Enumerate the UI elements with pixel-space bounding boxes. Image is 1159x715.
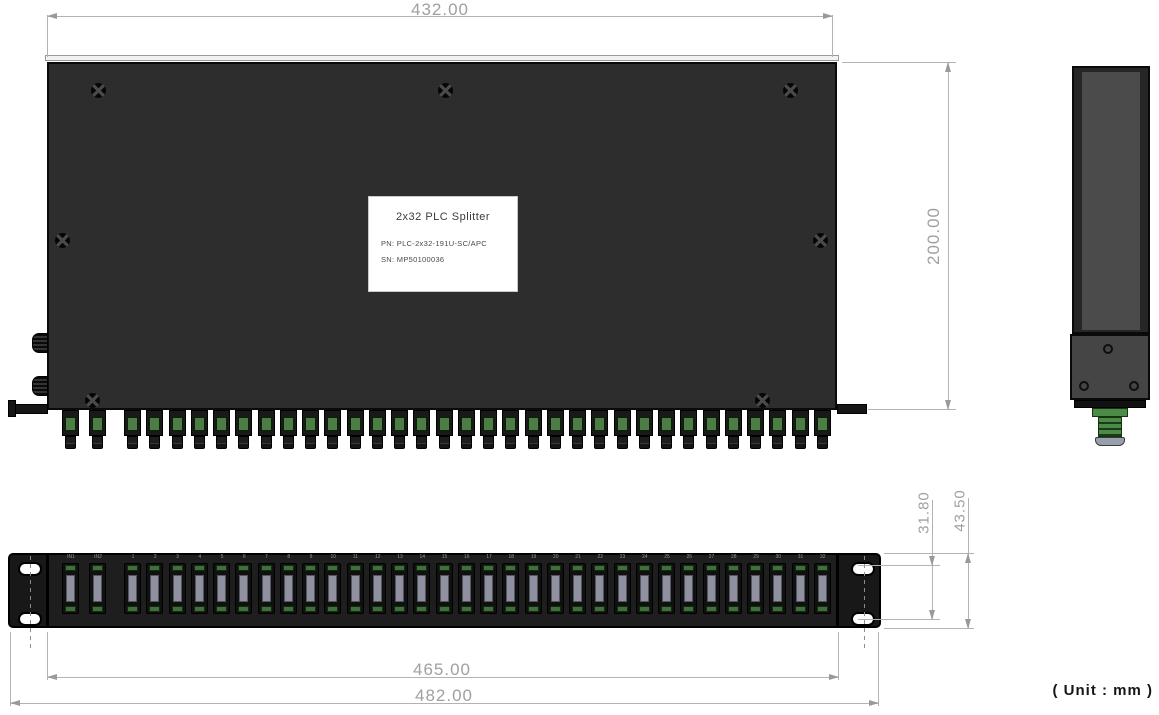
adapter-dust-plug (640, 575, 649, 602)
connector-housing (235, 410, 252, 436)
connector-housing (458, 410, 475, 436)
sc-apc-connector-top-view (747, 410, 764, 450)
device-label: 2x32 PLC Splitter PN: PLC-2x32-191U-SC/A… (368, 196, 518, 292)
cover-screw-icon (85, 393, 100, 408)
sc-apc-connector-top-view (89, 410, 106, 450)
sc-apc-connector-top-view (191, 410, 208, 450)
adapter-tab (439, 565, 450, 571)
adapter-tab (706, 565, 717, 571)
side-connector-body (1098, 417, 1122, 437)
port-label: 29 (745, 554, 767, 560)
adapter-dust-plug (684, 575, 693, 602)
dimension-arrow (965, 553, 971, 563)
sc-apc-connector-top-view (124, 410, 141, 450)
extension-line (47, 632, 48, 680)
connector-green-insert (505, 417, 516, 431)
adapter-tab (617, 565, 628, 571)
connector-green-insert (617, 417, 628, 431)
adapter-dust-plug (551, 575, 560, 602)
mounting-ear-right-top-view (837, 404, 867, 414)
adapter-tab (65, 606, 76, 612)
adapter-tab (706, 606, 717, 612)
adapter-tab (172, 565, 183, 571)
dimension-label-body-width: 465.00 (392, 660, 492, 680)
connector-housing (814, 410, 831, 436)
sc-apc-connector-top-view (235, 410, 252, 450)
slot-centerline (30, 556, 31, 652)
sc-apc-adapter-front-view: 21 (569, 563, 586, 614)
adapter-tab (795, 606, 806, 612)
adapter-dust-plug (796, 575, 805, 602)
extension-line (858, 565, 940, 566)
connector-boot (772, 436, 783, 449)
port-label: 11 (345, 554, 367, 560)
dimension-label-overall-width: 482.00 (394, 686, 494, 706)
connector-housing (302, 410, 319, 436)
sc-apc-adapter-front-view: IN1 (62, 563, 79, 614)
sc-apc-connector-top-view (769, 410, 786, 450)
connector-boot (795, 436, 806, 449)
connector-green-insert (194, 417, 205, 431)
connector-boot (661, 436, 672, 449)
adapter-tab (416, 606, 427, 612)
dimension-label-top-width: 432.00 (390, 0, 490, 20)
bracket-hole (1129, 381, 1139, 391)
connector-boot (127, 436, 138, 449)
sc-apc-adapter-front-view: 18 (502, 563, 519, 614)
adapter-dust-plug (373, 575, 382, 602)
adapter-tab (350, 606, 361, 612)
connector-green-insert (416, 417, 427, 431)
port-label: 28 (723, 554, 745, 560)
port-label: 14 (411, 554, 433, 560)
port-label: 7 (256, 554, 278, 560)
port-label: 21 (567, 554, 589, 560)
dimension-arrow (945, 400, 951, 410)
adapter-dust-plug (818, 575, 827, 602)
port-label: 15 (434, 554, 456, 560)
sc-apc-adapter-front-view: 10 (324, 563, 341, 614)
sc-apc-connector-top-view (458, 410, 475, 450)
connector-boot (817, 436, 828, 449)
adapter-dust-plug (328, 575, 337, 602)
adapter-tab (817, 606, 828, 612)
connector-boot (550, 436, 561, 449)
sc-apc-adapter-front-view: 3 (169, 563, 186, 614)
sc-apc-adapter-front-view: 26 (680, 563, 697, 614)
connector-green-insert (283, 417, 294, 431)
connector-green-insert (728, 417, 739, 431)
port-label: 9 (300, 554, 322, 560)
connector-green-insert (127, 417, 138, 431)
port-label: 20 (545, 554, 567, 560)
adapter-dust-plug (595, 575, 604, 602)
connector-green-insert (327, 417, 338, 431)
adapter-dust-plug (395, 575, 404, 602)
connector-boot (350, 436, 361, 449)
adapter-tab (683, 565, 694, 571)
connector-boot (92, 436, 103, 449)
connector-housing (525, 410, 542, 436)
adapter-dust-plug (217, 575, 226, 602)
adapter-dust-plug (484, 575, 493, 602)
unit-note: ( Unit : mm ) (1053, 682, 1154, 699)
connector-housing (658, 410, 675, 436)
extension-line (838, 632, 839, 680)
connector-boot (149, 436, 160, 449)
connector-housing (89, 410, 106, 436)
adapter-tab (394, 565, 405, 571)
sc-apc-connector-top-view (391, 410, 408, 450)
adapter-tab (283, 565, 294, 571)
dimension-arrow (929, 556, 935, 566)
sc-apc-connector-top-view (547, 410, 564, 450)
adapter-dust-plug (573, 575, 582, 602)
adapter-tab (65, 565, 76, 571)
adapter-tab (327, 606, 338, 612)
adapter-tab (772, 565, 783, 571)
connector-housing (725, 410, 742, 436)
thumb-screw (32, 333, 48, 353)
dimension-arrow (47, 674, 57, 680)
cover-screw-icon (91, 83, 106, 98)
engineering-drawing: 2x32 PLC Splitter PN: PLC-2x32-191U-SC/A… (0, 0, 1159, 715)
sc-apc-adapter-front-view: IN2 (89, 563, 106, 614)
sc-apc-adapter-front-view: 11 (347, 563, 364, 614)
adapter-tab (238, 565, 249, 571)
mounting-ear-left-flange (8, 400, 16, 417)
extension-line (10, 632, 11, 706)
sc-apc-connector-top-view (658, 410, 675, 450)
sc-apc-adapter-front-view: 9 (302, 563, 319, 614)
slot-centerline (864, 556, 865, 652)
dimension-arrow (823, 13, 833, 19)
connector-green-insert (261, 417, 272, 431)
port-label: 19 (523, 554, 545, 560)
connector-green-insert (594, 417, 605, 431)
connector-boot (261, 436, 272, 449)
adapter-tab (594, 565, 605, 571)
sc-apc-adapter-front-view: 22 (591, 563, 608, 614)
adapter-tab (550, 565, 561, 571)
device-label-serial-number: SN: MP50100036 (381, 255, 517, 264)
adapter-tab (728, 606, 739, 612)
adapter-tab (528, 606, 539, 612)
port-label: 10 (322, 554, 344, 560)
adapter-tab (594, 606, 605, 612)
dimension-line-200 (948, 62, 949, 410)
adapter-tab (817, 565, 828, 571)
connector-boot (394, 436, 405, 449)
connector-green-insert (172, 417, 183, 431)
port-label: 30 (767, 554, 789, 560)
connector-boot (461, 436, 472, 449)
extension-line (858, 619, 940, 620)
adapter-dust-plug (128, 575, 137, 602)
dimension-label-depth: 200.00 (924, 196, 944, 276)
chassis-back-edge (45, 55, 839, 61)
adapter-dust-plug (662, 575, 671, 602)
adapter-tab (661, 606, 672, 612)
sc-apc-adapter-front-view: 4 (191, 563, 208, 614)
connector-boot (439, 436, 450, 449)
port-label: 2 (144, 554, 166, 560)
connector-green-insert (817, 417, 828, 431)
adapter-tab (639, 565, 650, 571)
adapter-tab (394, 606, 405, 612)
adapter-tab (149, 565, 160, 571)
dimension-arrow (829, 674, 839, 680)
adapter-tab (216, 606, 227, 612)
connector-housing (636, 410, 653, 436)
dimension-arrow (945, 62, 951, 72)
connector-boot (65, 436, 76, 449)
adapter-tab (149, 606, 160, 612)
adapter-dust-plug (351, 575, 360, 602)
adapter-dust-plug (284, 575, 293, 602)
adapter-tab (661, 565, 672, 571)
sc-apc-adapter-front-view: 23 (614, 563, 631, 614)
side-view-panel-edge (1074, 400, 1146, 408)
connector-green-insert (92, 417, 103, 431)
sc-apc-connector-top-view (502, 410, 519, 450)
connector-boot (639, 436, 650, 449)
connector-green-insert (550, 417, 561, 431)
adapter-dust-plug (707, 575, 716, 602)
connector-green-insert (706, 417, 717, 431)
bracket-hole (1079, 381, 1089, 391)
connector-boot (372, 436, 383, 449)
adapter-tab (795, 565, 806, 571)
port-label: 16 (456, 554, 478, 560)
connector-housing (258, 410, 275, 436)
connector-boot (505, 436, 516, 449)
adapter-tab (505, 606, 516, 612)
sc-apc-adapter-front-view: 19 (525, 563, 542, 614)
connector-housing (280, 410, 297, 436)
connector-housing (369, 410, 386, 436)
sc-apc-connector-top-view (680, 410, 697, 450)
connector-boot (483, 436, 494, 449)
dimension-label-panel-height: 43.50 (952, 471, 969, 551)
adapter-dust-plug (618, 575, 627, 602)
sc-apc-connector-top-view (369, 410, 386, 450)
connector-housing (569, 410, 586, 436)
connector-housing (680, 410, 697, 436)
connector-boot (327, 436, 338, 449)
sc-apc-adapter-front-view: 2 (146, 563, 163, 614)
adapter-tab (127, 606, 138, 612)
adapter-tab (305, 565, 316, 571)
connector-boot (528, 436, 539, 449)
adapter-tab (550, 606, 561, 612)
extension-line (884, 553, 974, 554)
adapter-dust-plug (729, 575, 738, 602)
port-label: 8 (278, 554, 300, 560)
adapter-tab (350, 565, 361, 571)
sc-apc-connector-top-view (324, 410, 341, 450)
sc-apc-adapter-front-view: 12 (369, 563, 386, 614)
sc-apc-adapter-front-view: 25 (658, 563, 675, 614)
connector-green-insert (572, 417, 583, 431)
connector-green-insert (639, 417, 650, 431)
adapter-tab (639, 606, 650, 612)
port-label: 25 (656, 554, 678, 560)
extension-line (868, 409, 956, 410)
adapter-tab (772, 606, 783, 612)
connector-green-insert (483, 417, 494, 431)
port-label: 24 (634, 554, 656, 560)
sc-apc-connector-top-view (814, 410, 831, 450)
sc-apc-adapter-front-view: 31 (792, 563, 809, 614)
side-view-chassis (1072, 66, 1150, 334)
connector-boot (305, 436, 316, 449)
port-label: IN2 (87, 554, 109, 560)
sc-apc-connector-top-view (436, 410, 453, 450)
sc-apc-adapter-front-view: 32 (814, 563, 831, 614)
adapter-tab (572, 606, 583, 612)
connector-green-insert (683, 417, 694, 431)
adapter-dust-plug (529, 575, 538, 602)
sc-apc-connector-top-view (569, 410, 586, 450)
sc-apc-connector-top-view (258, 410, 275, 450)
connector-boot (617, 436, 628, 449)
adapter-tab (528, 565, 539, 571)
connector-green-insert (528, 417, 539, 431)
adapter-tab (127, 565, 138, 571)
dimension-arrow (10, 700, 20, 706)
adapter-tab (372, 565, 383, 571)
connector-housing (502, 410, 519, 436)
sc-apc-adapter-front-view: 24 (636, 563, 653, 614)
dimension-arrow (929, 610, 935, 620)
adapter-tab (572, 565, 583, 571)
connector-green-insert (350, 417, 361, 431)
connector-green-insert (661, 417, 672, 431)
thumb-screw (32, 376, 48, 396)
connector-housing (591, 410, 608, 436)
adapter-dust-plug (66, 575, 75, 602)
sc-apc-adapter-front-view: 29 (747, 563, 764, 614)
port-label: 1 (122, 554, 144, 560)
connector-boot (706, 436, 717, 449)
connector-green-insert (65, 417, 76, 431)
port-label: 31 (790, 554, 812, 560)
dimension-label-slot-spacing: 31.80 (916, 473, 933, 553)
connector-housing (191, 410, 208, 436)
port-label: 4 (189, 554, 211, 560)
sc-apc-connector-top-view (413, 410, 430, 450)
connector-housing (436, 410, 453, 436)
adapter-tab (461, 606, 472, 612)
side-connector-dust-cap (1095, 437, 1125, 446)
sc-apc-adapter-front-view: 1 (124, 563, 141, 614)
adapter-dust-plug (93, 575, 102, 602)
adapter-tab (92, 565, 103, 571)
connector-boot (238, 436, 249, 449)
extension-line (47, 15, 48, 57)
extension-line (884, 628, 974, 629)
connector-housing (703, 410, 720, 436)
adapter-tab (238, 606, 249, 612)
sc-apc-connector-top-view (146, 410, 163, 450)
connector-housing (792, 410, 809, 436)
adapter-dust-plug (462, 575, 471, 602)
connector-housing (413, 410, 430, 436)
side-view-cover (1082, 72, 1140, 330)
connector-green-insert (461, 417, 472, 431)
adapter-tab (172, 606, 183, 612)
sc-apc-adapter-front-view: 6 (235, 563, 252, 614)
connector-housing (124, 410, 141, 436)
connector-housing (547, 410, 564, 436)
sc-apc-adapter-front-view: 13 (391, 563, 408, 614)
connector-housing (324, 410, 341, 436)
port-label: 22 (589, 554, 611, 560)
sc-apc-adapter-front-view: 16 (458, 563, 475, 614)
extension-line (842, 62, 956, 63)
adapter-dust-plug (239, 575, 248, 602)
adapter-dust-plug (262, 575, 271, 602)
connector-housing (391, 410, 408, 436)
connector-housing (747, 410, 764, 436)
port-label: 26 (678, 554, 700, 560)
sc-apc-adapter-front-view: 28 (725, 563, 742, 614)
adapter-dust-plug (150, 575, 159, 602)
sc-apc-connector-top-view (525, 410, 542, 450)
connector-boot (172, 436, 183, 449)
sc-apc-connector-top-view (302, 410, 319, 450)
adapter-dust-plug (173, 575, 182, 602)
device-label-part-number: PN: PLC-2x32-191U-SC/APC (381, 239, 517, 248)
port-label: IN1 (60, 554, 82, 560)
port-label: 27 (701, 554, 723, 560)
adapter-tab (728, 565, 739, 571)
connector-housing (213, 410, 230, 436)
adapter-tab (439, 606, 450, 612)
extension-line (878, 632, 879, 706)
port-label: 18 (500, 554, 522, 560)
sc-apc-adapter-front-view: 8 (280, 563, 297, 614)
sc-apc-adapter-front-view: 5 (213, 563, 230, 614)
connector-housing (62, 410, 79, 436)
connector-housing (480, 410, 497, 436)
adapter-tab (617, 606, 628, 612)
port-label: 6 (233, 554, 255, 560)
port-label: 13 (389, 554, 411, 560)
port-label: 5 (211, 554, 233, 560)
connector-boot (728, 436, 739, 449)
sc-apc-adapter-front-view: 15 (436, 563, 453, 614)
connector-green-insert (149, 417, 160, 431)
port-label: 3 (167, 554, 189, 560)
sc-apc-connector-top-view (636, 410, 653, 450)
extension-line (832, 15, 833, 57)
cover-screw-icon (755, 393, 770, 408)
adapter-dust-plug (417, 575, 426, 602)
connector-green-insert (439, 417, 450, 431)
adapter-tab (505, 565, 516, 571)
connector-green-insert (238, 417, 249, 431)
sc-apc-adapter-front-view: 27 (703, 563, 720, 614)
sc-apc-adapter-front-view: 17 (480, 563, 497, 614)
cover-screw-icon (783, 83, 798, 98)
adapter-tab (483, 565, 494, 571)
adapter-dust-plug (751, 575, 760, 602)
connector-housing (146, 410, 163, 436)
adapter-dust-plug (195, 575, 204, 602)
connector-boot (194, 436, 205, 449)
